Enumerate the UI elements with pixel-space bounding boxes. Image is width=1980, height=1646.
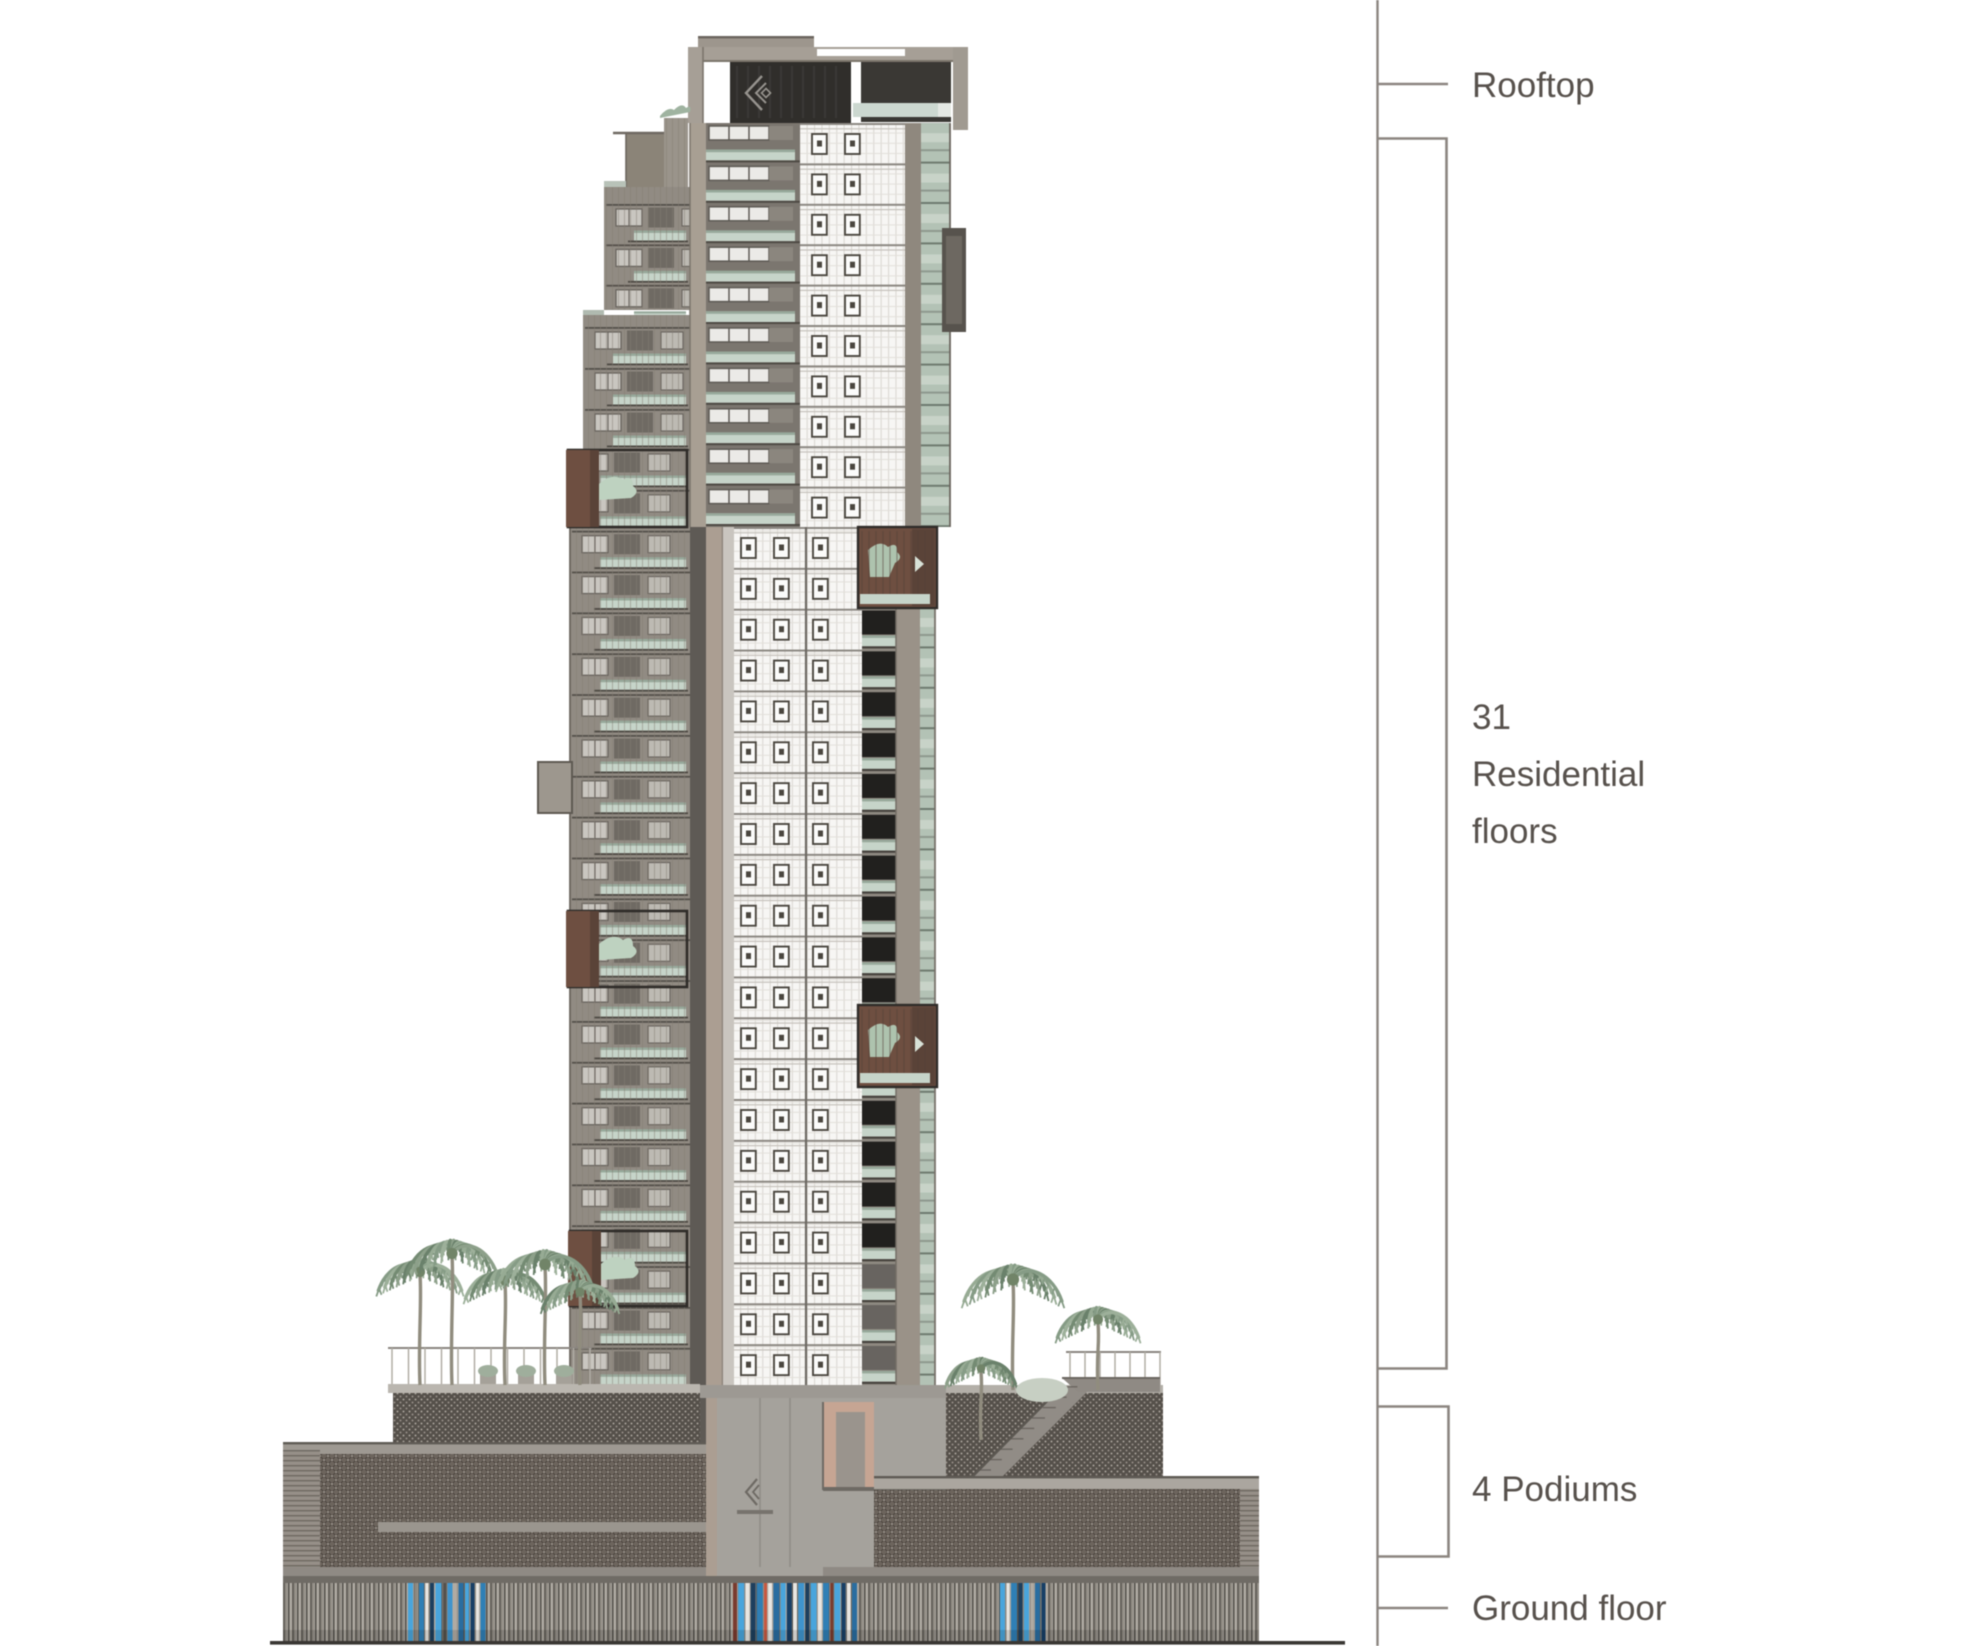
svg-text:Residential: Residential bbox=[1472, 755, 1645, 794]
svg-text:4 Podiums: 4 Podiums bbox=[1472, 1470, 1637, 1509]
svg-text:Rooftop: Rooftop bbox=[1472, 66, 1595, 105]
svg-text:floors: floors bbox=[1472, 812, 1558, 851]
svg-text:Ground floor: Ground floor bbox=[1472, 1589, 1667, 1628]
svg-text:31: 31 bbox=[1472, 698, 1511, 737]
